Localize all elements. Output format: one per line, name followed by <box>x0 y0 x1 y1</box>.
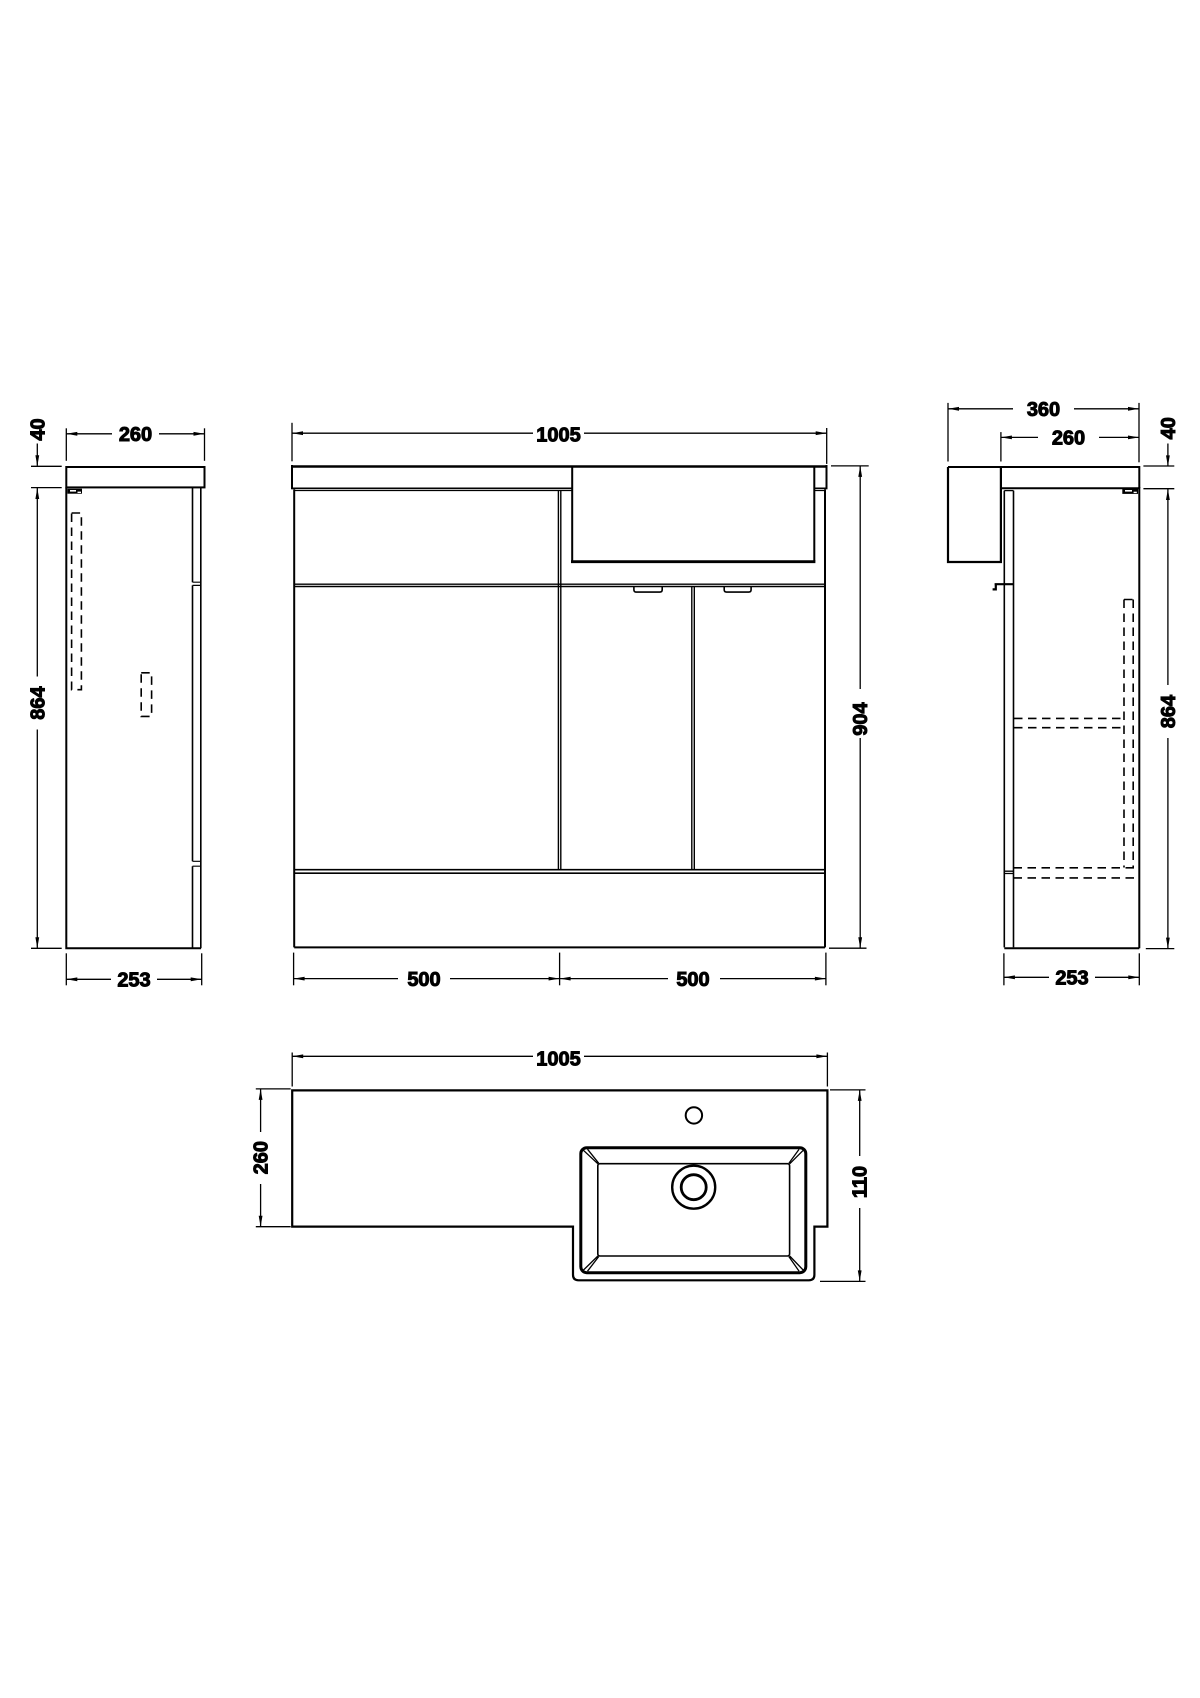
svg-text:260: 260 <box>119 424 152 446</box>
svg-text:500: 500 <box>407 969 440 991</box>
svg-text:1005: 1005 <box>536 424 581 446</box>
svg-text:40: 40 <box>27 418 49 440</box>
svg-text:1005: 1005 <box>536 1048 581 1070</box>
svg-text:864: 864 <box>27 685 49 719</box>
svg-text:253: 253 <box>117 970 150 992</box>
svg-text:864: 864 <box>1158 694 1180 728</box>
svg-text:110: 110 <box>850 1166 872 1198</box>
svg-text:904: 904 <box>850 701 872 735</box>
svg-text:40: 40 <box>1158 417 1180 439</box>
svg-text:253: 253 <box>1055 968 1088 990</box>
svg-text:500: 500 <box>676 969 709 991</box>
svg-text:360: 360 <box>1027 399 1060 421</box>
svg-text:260: 260 <box>1052 428 1085 450</box>
svg-text:260: 260 <box>251 1141 273 1174</box>
